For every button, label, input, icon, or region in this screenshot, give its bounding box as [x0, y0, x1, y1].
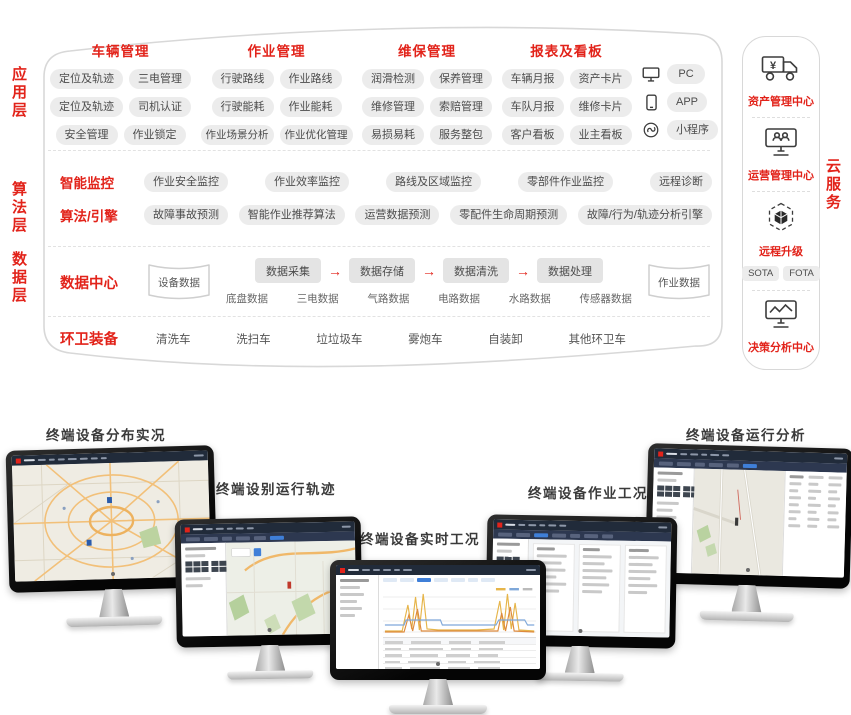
feature-pill: 行驶路线: [212, 69, 274, 89]
data-type-label: 传感器数据: [579, 291, 632, 306]
algo-pill: 故障事故预测: [144, 205, 228, 225]
feature-pill: 车辆月报: [502, 69, 564, 89]
equipment-item: 洗扫车: [236, 331, 271, 347]
phone-icon: [641, 94, 661, 111]
application-layer: 车辆管理 定位及轨迹 三电管理 定位及轨迹 司机认证 安全管理 作业锁定 作业管…: [50, 40, 718, 153]
sota-pill: SOTA: [742, 266, 779, 282]
group-maintenance-mgmt: 维保管理 润滑检测 保养管理 维修管理 索赔管理 易损易耗 服务整包: [362, 40, 492, 153]
feature-pill: 定位及轨迹: [50, 97, 123, 117]
feature-pill: 作业优化管理: [280, 125, 353, 145]
data-type-label: 电路数据: [438, 291, 480, 306]
algo-pill: 零部件作业监控: [518, 172, 613, 192]
feature-pill: 作业场景分析: [201, 125, 274, 145]
telemetry-table: [379, 637, 540, 669]
algo-pill: 智能作业推荐算法: [239, 205, 345, 225]
operation-mgmt-section: 运营管理中心: [748, 127, 814, 183]
feature-pill: 业主看板: [570, 125, 632, 145]
section-divider: [752, 290, 810, 291]
equipment-item: 清洗车: [156, 331, 191, 347]
feature-pill: 索赔管理: [430, 97, 492, 117]
data-type-label: 底盘数据: [226, 291, 268, 306]
row-label: 环卫装备: [60, 328, 156, 349]
detail-map: [691, 468, 785, 575]
pipeline-step: 数据清洗: [443, 258, 509, 283]
device-pill: 小程序: [667, 120, 718, 140]
equipment-item: 雾炮车: [408, 331, 443, 347]
algo-pill: 运营数据预测: [355, 205, 439, 225]
cloud-service-label: 云服务: [822, 158, 843, 212]
feature-pill: 安全管理: [56, 125, 118, 145]
algorithm-layer: 智能监控 作业安全监控 作业效率监控 路线及区域监控 零部件作业监控 远程诊断 …: [60, 172, 712, 238]
algo-pill: 作业效率监控: [265, 172, 349, 192]
feature-pill: 作业能耗: [280, 97, 342, 117]
device-pill: APP: [667, 92, 707, 112]
operation-monitor-icon: [764, 127, 798, 162]
feature-pill: 维修管理: [362, 97, 424, 117]
layer-divider: [48, 316, 710, 317]
feature-pill: 保养管理: [430, 69, 492, 89]
device-data-store: 设备数据: [146, 255, 212, 309]
group-title: 维保管理: [398, 40, 456, 60]
data-type-label: 气路数据: [367, 291, 409, 306]
service-label: 资产管理中心: [748, 93, 814, 109]
feature-pill: 润滑检测: [362, 69, 424, 89]
feature-pill: 维修卡片: [570, 97, 632, 117]
pipeline-step: 数据采集: [255, 258, 321, 283]
device-pill: PC: [667, 64, 705, 84]
decision-analysis-section: 决策分析中心: [748, 299, 814, 355]
algo-pill: 零配件生命周期预测: [450, 205, 567, 225]
section-divider: [752, 191, 810, 192]
feature-pill: 司机认证: [129, 97, 191, 117]
store-label: 作业数据: [646, 255, 712, 309]
telemetry-chart: [383, 585, 536, 637]
feature-pill: 三电管理: [129, 69, 191, 89]
service-label: 远程升级: [759, 243, 803, 259]
service-label: 决策分析中心: [748, 339, 814, 355]
pipeline-step: 数据存储: [349, 258, 415, 283]
app-logo: [16, 458, 21, 463]
work-cards: [527, 539, 671, 637]
fota-pill: FOTA: [783, 266, 820, 282]
layer-label-data: 数据层: [8, 251, 29, 305]
monitor-caption: 终端设备实时工况: [360, 528, 480, 548]
group-title: 车辆管理: [92, 40, 150, 60]
data-type-label: 三电数据: [297, 291, 339, 306]
pipeline-step: 数据处理: [537, 258, 603, 283]
store-label: 设备数据: [146, 255, 212, 309]
feature-pill: 作业路线: [280, 69, 342, 89]
equipment-item: 垃垃圾车: [316, 331, 362, 347]
data-type-label: 水路数据: [509, 291, 551, 306]
data-layer: 数据中心 设备数据 数据采集 数据存储 数据清洗 数据处理 底盘数据 三电数据 …: [60, 252, 712, 312]
flow-arrow-icon: [328, 264, 342, 278]
app-logo: [185, 527, 190, 532]
screen-body: [651, 467, 847, 577]
page: 应用层 算法层 数据层 云服务 车辆管理 定位及轨迹 三电管理 定位及轨迹 司机…: [0, 0, 851, 715]
monitor-caption: 终端设备作业工况: [528, 482, 648, 502]
asset-truck-icon: ¥: [761, 53, 801, 88]
svg-text:¥: ¥: [770, 60, 777, 72]
group-vehicle-mgmt: 车辆管理 定位及轨迹 三电管理 定位及轨迹 司机认证 安全管理 作业锁定: [50, 40, 191, 153]
row-label: 算法/引擎: [60, 205, 144, 225]
equipment-item: 自装卸: [488, 331, 523, 347]
group-operation-mgmt: 作业管理 行驶路线 作业路线 行驶能耗 作业能耗 作业场景分析 作业优化管理: [201, 40, 353, 153]
feature-pill: 易损易耗: [362, 125, 424, 145]
feature-pill: 服务整包: [430, 125, 492, 145]
feature-pill: 客户看板: [502, 125, 564, 145]
remote-upgrade-icon: [765, 201, 797, 238]
equipment-layer: 环卫装备 清洗车 洗扫车 垃垃圾车 雾炮车 自装卸 其他环卫车: [60, 328, 626, 349]
feature-pill: 行驶能耗: [212, 97, 274, 117]
algo-pill: 故障/行为/轨迹分析引擎: [578, 205, 712, 225]
equipment-item: 其他环卫车: [568, 331, 626, 347]
group-title: 作业管理: [248, 40, 306, 60]
app-logo: [658, 451, 663, 456]
monitor-realtime: [330, 560, 546, 714]
row-label: 数据中心: [60, 272, 146, 293]
remote-upgrade-section: 远程升级 SOTA FOTA: [742, 201, 820, 282]
pc-icon: [641, 67, 661, 82]
app-logo: [340, 568, 345, 573]
service-column: ¥ 资产管理中心 运营管理中心 远程升级: [742, 36, 820, 370]
section-divider: [752, 117, 810, 118]
asset-mgmt-section: ¥ 资产管理中心: [748, 53, 814, 109]
algo-pill: 路线及区域监控: [386, 172, 481, 192]
flow-arrow-icon: [422, 264, 436, 278]
operation-data-store: 作业数据: [646, 255, 712, 309]
monitor-caption: 终端设备分布实况: [46, 424, 166, 444]
feature-pill: 定位及轨迹: [50, 69, 123, 89]
flow-arrow-icon: [516, 264, 530, 278]
group-title: 报表及看板: [530, 40, 603, 60]
algo-pill: 远程诊断: [650, 172, 712, 192]
monitor-caption: 终端设备运行分析: [686, 424, 806, 444]
feature-pill: 车队月报: [502, 97, 564, 117]
row-label: 智能监控: [60, 172, 144, 192]
group-reports-dashboard: 报表及看板 车辆月报 资产卡片 车队月报 维修卡片 客户看板 业主看板: [502, 40, 632, 153]
monitor-caption: 终端设别运行轨迹: [216, 478, 336, 498]
screen-body: [336, 575, 540, 669]
app-logo: [497, 522, 502, 527]
miniapp-icon: [641, 122, 661, 138]
feature-pill: 作业锁定: [124, 125, 186, 145]
screen-navbar: [336, 565, 540, 575]
service-label: 运营管理中心: [748, 167, 814, 183]
chart-panel: [379, 575, 540, 669]
data-pipeline: 数据采集 数据存储 数据清洗 数据处理 底盘数据 三电数据 气路数据 电路数据 …: [224, 258, 634, 306]
decision-chart-icon: [764, 299, 798, 334]
layer-label-application: 应用层: [8, 66, 29, 120]
stats-panel: [782, 471, 847, 578]
layer-divider: [48, 246, 710, 247]
algo-pill: 作业安全监控: [144, 172, 228, 192]
feature-pill: 资产卡片: [570, 69, 632, 89]
layer-label-algorithm: 算法层: [8, 181, 29, 235]
device-column: PC APP 小程序: [641, 40, 718, 153]
